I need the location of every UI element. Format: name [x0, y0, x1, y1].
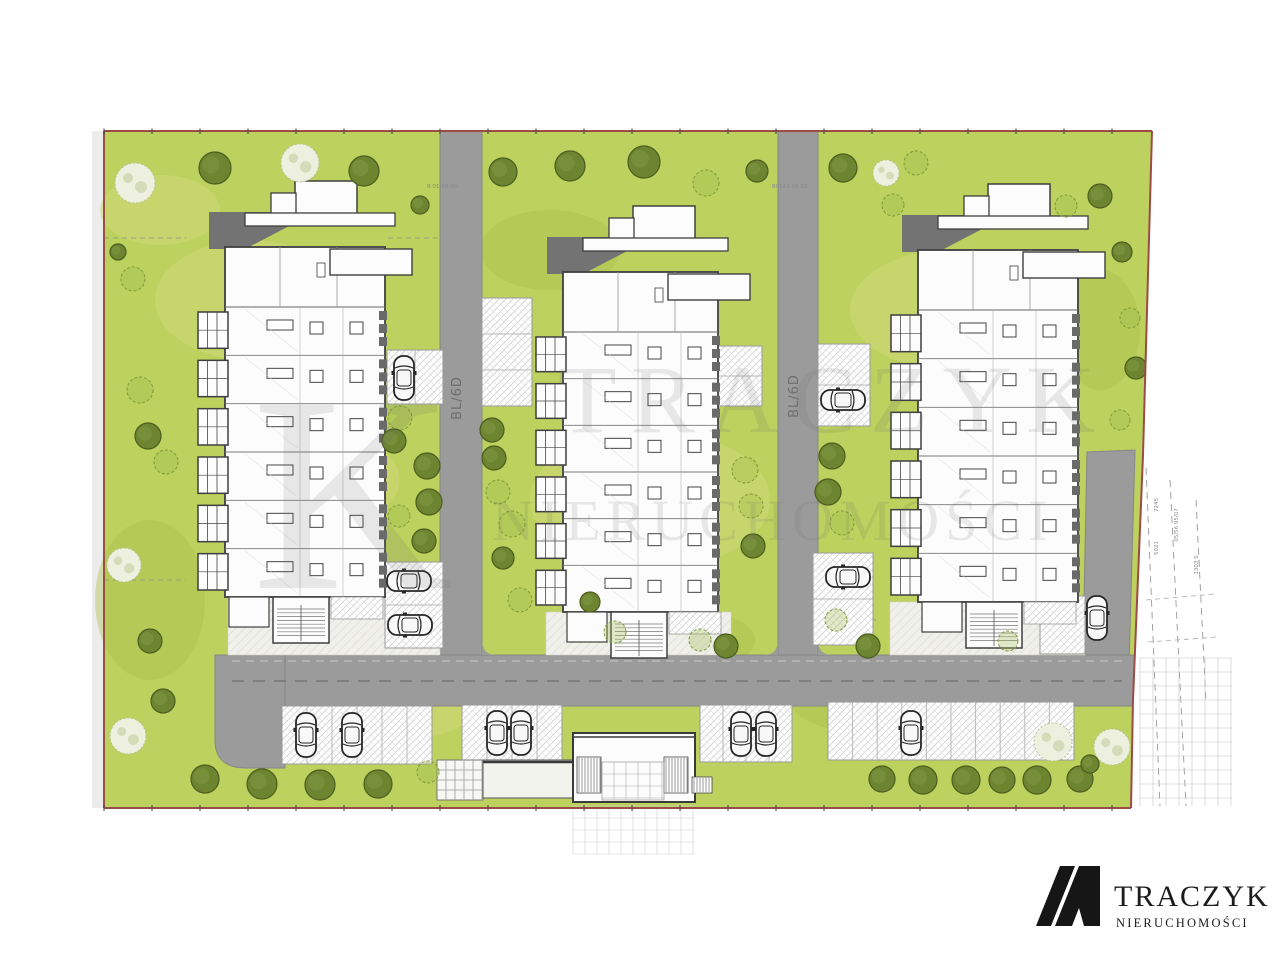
tree-sketch	[1055, 195, 1077, 217]
tree-speckle	[878, 167, 885, 174]
window	[350, 322, 363, 334]
tree-dark	[135, 423, 161, 449]
tree-highlight	[352, 160, 369, 177]
roof-vent	[317, 263, 325, 277]
tree-dark	[1023, 766, 1051, 794]
tree-highlight	[367, 774, 382, 789]
tree-light	[107, 548, 141, 582]
window	[1003, 325, 1016, 337]
roof-step	[633, 206, 695, 239]
window	[310, 322, 323, 334]
garage-entrance	[573, 733, 712, 802]
site-plan-drawing: BL/6D BL/6D B 01/68 BN BI 1A1 98 DE 7245…	[0, 0, 1280, 960]
tree-highlight	[492, 162, 507, 177]
tree-highlight	[194, 769, 209, 784]
tree-canopy	[1120, 308, 1140, 328]
tree-highlight	[858, 637, 871, 650]
car	[826, 565, 870, 590]
tree-dark	[746, 160, 768, 182]
car-mirror	[921, 726, 924, 730]
tree-canopy	[604, 621, 626, 643]
roof-slab	[583, 238, 728, 251]
underground-grid	[573, 806, 695, 854]
car-mirror	[316, 728, 319, 732]
tree-canopy	[110, 718, 146, 754]
tree-light	[281, 144, 319, 182]
dim-label-right-4: 1303 S	[1194, 555, 1200, 575]
window	[267, 320, 293, 330]
tree-dark	[349, 156, 379, 186]
tree-dark	[1112, 242, 1132, 262]
car	[485, 711, 510, 755]
tree-highlight	[716, 637, 729, 650]
car-mirror	[531, 726, 534, 730]
tree-sketch	[508, 588, 532, 612]
car-mirror	[729, 727, 732, 731]
agency-logo: TRACZYK NIERUCHOMOŚCI	[1036, 866, 1270, 930]
tree-highlight	[558, 155, 575, 172]
tree-sketch	[121, 267, 145, 291]
window	[1043, 471, 1056, 483]
tree-sketch	[732, 457, 758, 483]
retaining-wall	[483, 760, 573, 798]
tree-sketch	[825, 609, 847, 631]
window	[960, 469, 986, 479]
tree-light	[1034, 723, 1072, 761]
car	[754, 712, 779, 756]
tree-sketch	[1110, 410, 1130, 430]
roof-vent	[655, 288, 663, 302]
sidewalk-strip	[92, 131, 104, 808]
car-mirror	[1107, 611, 1110, 615]
tree-highlight	[631, 150, 649, 168]
tree-highlight	[482, 421, 495, 434]
tree-dark	[110, 244, 126, 260]
tree-dark	[1125, 357, 1147, 379]
tree-highlight	[202, 156, 220, 174]
tree-sketch	[127, 377, 153, 403]
window	[960, 566, 986, 576]
tree-dark	[489, 158, 517, 186]
tree-canopy	[825, 609, 847, 631]
balcony-cell	[1072, 535, 1080, 544]
balcony-cell	[1072, 522, 1080, 531]
car-mirror	[841, 587, 845, 590]
dim-label-right-3: 05/56 95/07	[1174, 508, 1180, 542]
tree-highlight	[955, 770, 970, 785]
tree-highlight	[112, 246, 121, 255]
tree-highlight	[308, 774, 325, 791]
dim-label-top-b: BI 1A1 98 DE	[772, 184, 809, 190]
tree-dark	[555, 151, 585, 181]
car-mirror	[751, 727, 754, 731]
tree-sketch	[998, 631, 1018, 651]
tree-canopy	[732, 457, 758, 483]
car	[340, 713, 365, 757]
tree-dark	[305, 770, 335, 800]
tree-dark	[1088, 184, 1112, 208]
tree-sketch	[417, 761, 439, 783]
dim-label-right-1: 7245	[1154, 498, 1160, 512]
balcony-cell	[712, 455, 720, 464]
car-mirror	[1085, 611, 1088, 615]
tree-speckle	[1101, 738, 1110, 747]
tree-dark	[364, 770, 392, 798]
tree-dark	[247, 769, 277, 799]
car-mirror	[340, 728, 343, 732]
balcony-cell	[712, 336, 720, 345]
tree-dark	[714, 634, 738, 658]
tree-sketch	[604, 621, 626, 643]
roof-step	[964, 196, 989, 218]
tree-highlight	[1114, 245, 1125, 256]
balcony-cell	[1072, 473, 1080, 482]
tree-speckle	[117, 727, 126, 736]
tree-sketch	[1120, 308, 1140, 328]
tree-highlight	[1026, 770, 1041, 785]
road-main-left-bend	[215, 655, 285, 768]
tree-canopy	[417, 761, 439, 783]
tree-sketch	[693, 170, 719, 196]
tree-highlight	[832, 158, 847, 173]
tree-canopy	[998, 631, 1018, 651]
tree-canopy	[107, 548, 141, 582]
window	[648, 580, 661, 592]
watermark-subtitle: NIERUCHOMOŚCI	[492, 488, 1053, 553]
balcony-cell	[379, 311, 387, 320]
roof-slab	[938, 216, 1088, 229]
lawn-dark-patch	[95, 520, 205, 680]
roof-step	[988, 184, 1050, 217]
balcony-cell	[1072, 314, 1080, 323]
balcony-cell	[712, 569, 720, 578]
car	[899, 711, 924, 755]
roof-vent	[1010, 266, 1018, 280]
tree-speckle	[886, 172, 894, 180]
car-mirror	[776, 727, 779, 731]
parking-bay	[482, 298, 532, 406]
car-mirror	[362, 728, 365, 732]
tree-dark	[151, 689, 175, 713]
tree-light	[115, 163, 155, 203]
louver-block	[664, 757, 688, 793]
pergola	[437, 760, 483, 800]
site-plan-page: BL/6D BL/6D B 01/68 BN BI 1A1 98 DE 7245…	[0, 0, 1280, 960]
watermark-title: TRACZYK	[558, 346, 1109, 453]
tree-highlight	[912, 770, 927, 785]
tree-sketch	[689, 629, 711, 651]
tree-dark	[829, 154, 857, 182]
car-mirror	[754, 727, 757, 731]
tree-canopy	[115, 163, 155, 203]
logo-title: TRACZYK	[1114, 880, 1270, 913]
tree-dark	[191, 765, 219, 793]
tree-highlight	[582, 595, 593, 606]
tree-speckle	[1112, 745, 1123, 756]
tree-speckle	[135, 181, 147, 193]
tree-canopy	[121, 267, 145, 291]
balcony-cell	[712, 582, 720, 591]
tree-canopy	[873, 160, 899, 186]
window	[688, 580, 701, 592]
watermark-monogram: K	[252, 338, 454, 649]
tree-dark	[856, 634, 880, 658]
tree-canopy	[904, 151, 928, 175]
window	[605, 578, 631, 588]
tree-canopy	[1110, 410, 1130, 430]
dim-label-right-2: 5021	[1154, 541, 1160, 555]
roof-terrace	[668, 274, 750, 300]
tree-canopy	[1055, 195, 1077, 217]
tree-dark	[480, 418, 504, 442]
car-mirror	[294, 728, 297, 732]
balcony-cell	[1072, 460, 1080, 469]
tree-highlight	[872, 769, 886, 783]
tree-highlight	[1090, 187, 1103, 200]
car-mirror	[841, 565, 845, 568]
tree-canopy	[1034, 723, 1072, 761]
tree-highlight	[484, 449, 497, 462]
tree-canopy	[281, 144, 319, 182]
balcony-cell	[1072, 583, 1080, 592]
balcony-cell	[1072, 327, 1080, 336]
tree-dark	[138, 629, 162, 653]
tree-highlight	[992, 770, 1006, 784]
dim-label-top-a: B 01/68 BN	[427, 184, 458, 190]
entry-block	[567, 612, 607, 642]
tree-highlight	[413, 198, 423, 208]
tree-highlight	[1070, 769, 1084, 783]
tree-speckle	[1042, 733, 1052, 743]
entry-paving	[1024, 602, 1076, 624]
roof-step	[609, 218, 634, 240]
tree-dark	[989, 767, 1015, 793]
tree-sketch	[904, 151, 928, 175]
tree-highlight	[1127, 360, 1139, 372]
roof-step	[295, 181, 357, 214]
tree-canopy	[882, 194, 904, 216]
tree-light	[1094, 729, 1130, 765]
car	[294, 713, 319, 757]
tree-canopy	[689, 629, 711, 651]
tree-speckle	[124, 563, 134, 573]
tree-dark	[952, 766, 980, 794]
tree-speckle	[300, 161, 311, 172]
tree-canopy	[508, 588, 532, 612]
roof-terrace	[330, 249, 412, 275]
tree-dark	[628, 146, 660, 178]
roof-slab	[245, 213, 395, 226]
window	[1003, 568, 1016, 580]
window	[960, 323, 986, 333]
window	[1043, 325, 1056, 337]
tree-canopy	[1094, 729, 1130, 765]
logo-subtitle: NIERUCHOMOŚCI	[1116, 916, 1249, 930]
tree-dark	[482, 446, 506, 470]
balcony-cell	[1072, 509, 1080, 518]
tree-dark	[1081, 755, 1099, 773]
tree-light	[110, 718, 146, 754]
balcony-cell	[1072, 486, 1080, 495]
roof-terrace	[1023, 252, 1105, 278]
tree-speckle	[114, 557, 123, 566]
entry-block	[922, 602, 962, 632]
car	[729, 712, 754, 756]
tree-sketch	[154, 450, 178, 474]
tree-speckle	[128, 734, 139, 745]
tree-canopy	[693, 170, 719, 196]
balcony-cell	[379, 324, 387, 333]
balcony-cell	[1072, 557, 1080, 566]
tree-dark	[869, 766, 895, 792]
tree-speckle	[289, 154, 299, 164]
tree-dark	[411, 196, 429, 214]
car-mirror	[899, 726, 902, 730]
tree-highlight	[140, 632, 153, 645]
car-mirror	[509, 726, 512, 730]
tree-highlight	[138, 426, 152, 440]
tree-speckle	[1053, 740, 1064, 751]
tree-highlight	[748, 163, 760, 175]
tree-highlight	[250, 773, 267, 790]
tree-sketch	[882, 194, 904, 216]
tree-canopy	[127, 377, 153, 403]
tree-light	[873, 160, 899, 186]
roof-step	[271, 193, 296, 215]
car-mirror	[485, 726, 488, 730]
window	[1003, 471, 1016, 483]
window	[1043, 568, 1056, 580]
tree-dark	[199, 152, 231, 184]
balcony-cell	[1072, 570, 1080, 579]
tree-dark	[580, 592, 600, 612]
balcony-cell	[712, 595, 720, 604]
tree-highlight	[1083, 757, 1093, 767]
tree-speckle	[123, 173, 133, 183]
louver-block	[577, 757, 601, 793]
car	[1085, 596, 1110, 640]
tree-highlight	[153, 692, 166, 705]
tree-canopy	[154, 450, 178, 474]
car	[509, 711, 534, 755]
tree-dark	[909, 766, 937, 794]
balcony-cell	[712, 476, 720, 485]
